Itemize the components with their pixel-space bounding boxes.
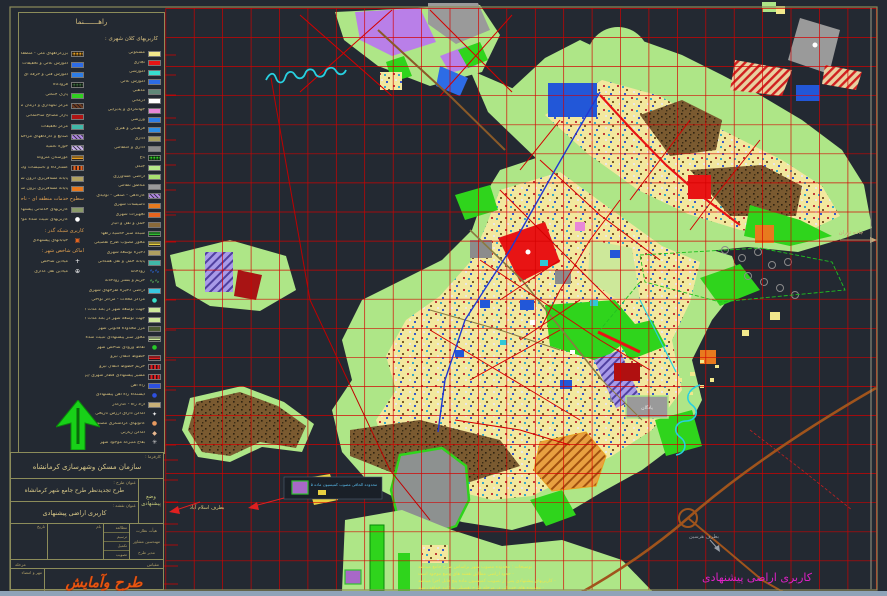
asterisk-symbol-icon: ✳ <box>148 440 161 446</box>
cad-drawing-canvas[interactable]: جاده تهران بطرف اسلام آباد بطرف هرسین پا… <box>0 0 887 596</box>
legend-item-label: جنگل <box>135 165 145 170</box>
legend-item: مرکز نگهداری و درمان معتادان <box>21 101 84 111</box>
window-bottom-edge <box>0 591 887 596</box>
road-label-tehran: جاده تهران <box>839 230 864 236</box>
legend-item-label: آزاد راه - کنارگذر <box>112 403 145 408</box>
legend-item-label: حریم خطوط انتقال نیرو <box>99 365 145 370</box>
legend-color-swatch <box>148 70 161 76</box>
legend-color-swatch <box>148 260 161 266</box>
blob-symbol-icon: ● <box>148 421 161 427</box>
legend-item: آموزش عالی و تحقیقات <box>21 59 84 69</box>
sheet-row: عنوان نقشه : کاربری اراضی پیشنهادی <box>11 502 138 524</box>
client-name: سازمان مسکن وشهرسازی کرمانشاه <box>11 453 163 481</box>
legend-item-label: بازار مصالح ساختمانی <box>26 114 68 119</box>
legend-item: اداری <box>84 135 161 145</box>
plan-sheet-rows: وضع پیشنهادی عنوان طرح : طرح تجدیدنظر طر… <box>11 479 163 524</box>
legend-section-header: اماکن شاخص شهر : <box>21 246 84 256</box>
legend-item-label: پایانه مسافربری برون شهری <box>21 187 68 192</box>
legend-color-swatch <box>148 184 161 190</box>
legend-color-swatch <box>148 326 161 332</box>
legend-item: مناطق نظامی <box>84 182 161 192</box>
legend-item-label: حوزه علمیه <box>46 145 68 150</box>
legend-color-swatch <box>148 165 161 171</box>
legend-color-swatch: ∿∿ <box>148 279 161 285</box>
legend-color-swatch <box>71 114 84 120</box>
plan-label: عنوان طرح : <box>113 480 136 485</box>
legend-item-label: اراضی ذخیره طرحهای شهری <box>89 289 145 294</box>
legend-item-label: تجاری <box>134 61 145 66</box>
legend-section-header: سطوح خدمات منطقه ای - ناحیه ای : <box>21 194 84 204</box>
legend-color-swatch <box>148 108 161 114</box>
legend-color-swatch <box>71 51 84 57</box>
plan-row: عنوان طرح : طرح تجدیدنظر طرح جامع شهر کر… <box>11 479 138 502</box>
legend-color-swatch <box>71 155 84 161</box>
legend-item: شبکه سبز حاشیه راهها <box>84 230 161 240</box>
road-label-islamabad: بطرف اسلام آباد <box>190 504 225 511</box>
title-block: کارفرما : سازمان مسکن وشهرسازی کرمانشاه … <box>10 452 164 590</box>
legend-item-label: بزرگراههای ملی - منطقه ای <box>21 52 68 57</box>
legend-item: نقاط ورودی شاخص شهر● <box>84 344 161 354</box>
sheet-title-text: کاربری اراضی پیشنهادی <box>702 571 813 584</box>
legend-color-swatch <box>148 155 161 161</box>
legend-item-label: مرکز تحقیقات <box>41 125 68 130</box>
legend-color-swatch <box>148 146 161 152</box>
legend-color-swatch <box>148 79 161 85</box>
legend-item-label: حمل و نقل و انبار <box>111 222 145 227</box>
legend-column-left: بزرگراههای ملی - منطقه ایآموزش عالی و تح… <box>21 49 84 278</box>
legend-item-label: کارگاهی - صنفی - تولیدی <box>96 194 145 199</box>
legend-item: مسکونی <box>84 49 161 59</box>
legend-panel: راهـــــــنما کاربریهای کلان شهری : بزرگ… <box>18 12 165 454</box>
legend-item-label: محور سبز پیشنهادی تثبیت شده <box>85 336 145 341</box>
legend-color-swatch <box>71 176 84 182</box>
legend-item: مسیر پیشنهادی قطار شهری (پروژه) <box>84 372 161 382</box>
legend-item: پارک جنگلی <box>21 91 84 101</box>
legend-item: حمل و نقل و انبار <box>84 220 161 230</box>
legend-color-swatch <box>71 145 84 151</box>
signature-table-right-labels: هیأت نظارت مهندسین مشاور مدیر طرح <box>129 524 163 559</box>
client-label: کارفرما : <box>145 454 161 459</box>
legend-item-label: اداری و انتظامی <box>114 146 145 151</box>
legend-item: باغ <box>84 154 161 164</box>
legend-item: درمانی <box>84 97 161 107</box>
legend-item: ورزشی <box>84 116 161 126</box>
signature-table: هیأت نظارت مهندسین مشاور مدیر طرح مطالعه… <box>11 524 163 560</box>
legend-color-swatch <box>148 355 161 361</box>
legend-item: خیابانهای پیشنهادی▣ <box>21 236 84 246</box>
legend-item-label: تجهیزات شهری <box>116 213 145 218</box>
legend-color-swatch <box>148 60 161 66</box>
legend-item-label: کانونهای گردشگری مصنوع <box>94 422 145 427</box>
legend-item-label: صنایع و کارگاههای مزاحم شهری <box>21 135 68 140</box>
legend-color-swatch <box>148 374 161 380</box>
legend-color-swatch <box>71 134 84 140</box>
legend-item: راه آهن <box>84 382 161 392</box>
legend-color-swatch <box>148 231 161 237</box>
dot-symbol-icon: ● <box>148 393 161 399</box>
legend-item: کاربریهای تثبیت شده موجود● <box>21 215 84 225</box>
garrison-label: پادگان <box>641 404 653 411</box>
dot-symbol-icon: ● <box>148 345 161 351</box>
signature-date-column: تاریخ <box>11 524 47 559</box>
legend-item-label: اراضی کشاورزی <box>113 175 145 180</box>
legend-item: تجاری <box>84 59 161 69</box>
sheet-label: عنوان نقشه : <box>112 503 136 508</box>
legend-item: رودخانه∿∿ <box>84 268 161 278</box>
legend-item-label: درمانی <box>132 99 145 104</box>
dot-symbol-icon: ● <box>148 298 161 304</box>
legend-color-swatch <box>148 117 161 123</box>
legend-item-label: پارک جنگلی <box>45 93 68 98</box>
legend-item-label: حریم و بستر رودخانه <box>105 279 145 284</box>
svg-text:- کاربریهای پیشنهادی پس از تصو: - کاربریهای پیشنهادی پس از تصویب کمیسیون… <box>418 578 556 584</box>
legend-item: مرکز تحقیقات <box>21 122 84 132</box>
legend-color-swatch <box>148 307 161 313</box>
diamond-symbol-icon: ◆ <box>148 431 161 437</box>
scale-label: مقیاس <box>147 560 159 568</box>
legend-item: اراضی ذخیره طرحهای شهری <box>84 287 161 297</box>
scale-stage-row: مقیاس مرحله <box>11 560 163 569</box>
legend-item-label: کشتارگاه و تاسیسات وابسته <box>21 166 68 171</box>
legend-color-swatch <box>148 222 161 228</box>
legend-item-label: میادین ثقل گذاری <box>34 270 68 275</box>
star-symbol-icon: ✦ <box>148 412 161 418</box>
legend-item: فرهنگی و هنری <box>84 125 161 135</box>
legend-item: مراکز محلات - مراکز نواحی● <box>84 296 161 306</box>
legend-item-label: محور مصوب طرح تفصیلی <box>94 241 145 246</box>
legend-color-swatch <box>71 103 84 109</box>
legend-item-label: مراکز محلات - مراکز نواحی <box>91 298 145 303</box>
legend-color-swatch <box>148 127 161 133</box>
legend-item-label: کاربریهای خدماتی پیشنهادی مقیاس شهری <box>21 208 68 213</box>
legend-item: کاربریهای خدماتی پیشنهادی مقیاس شهری <box>21 205 84 215</box>
legend-color-swatch <box>148 136 161 142</box>
legend-item: اداری و انتظامی <box>84 144 161 154</box>
legend-color-swatch <box>148 364 161 370</box>
legend-item: حریم خطوط انتقال نیرو <box>84 363 161 373</box>
legend-item-label: پایانه حمل و نقل همگانی <box>98 260 145 265</box>
legend-item-label: رودخانه <box>131 270 145 275</box>
legend-item: حریم و بستر رودخانه∿∿ <box>84 277 161 287</box>
legend-color-swatch <box>148 98 161 104</box>
legend-item-label: اداری <box>135 137 145 142</box>
legend-item-label: کاربریهای تثبیت شده موجود <box>21 218 68 223</box>
status-side-tab: وضع پیشنهادی <box>139 479 163 523</box>
legend-color-swatch <box>148 203 161 209</box>
legend-color-swatch <box>71 82 84 88</box>
legend-item: پایانه مسافربری درون شهری <box>21 174 84 184</box>
legend-item: میادین شاخص+ <box>21 257 84 267</box>
legend-item: پایانه حمل و نقل همگانی <box>84 258 161 268</box>
legend-item: گورستان متروکه <box>21 153 84 163</box>
legend-item-label: خیابانهای پیشنهادی <box>33 239 68 244</box>
legend-item: خطوط انتقال نیرو <box>84 353 161 363</box>
legend-color-swatch <box>148 383 161 389</box>
legend-item-label: ورزشی <box>131 118 145 123</box>
legend-item: کارگاهی - صنفی - تولیدی <box>84 192 161 202</box>
legend-item-label: مسیر پیشنهادی قطار شهری (پروژه) <box>85 374 145 379</box>
legend-item-label: مرز محدوده قانونی شهر <box>98 327 145 332</box>
legend-item: میادین ثقل گذاری⊕ <box>21 267 84 277</box>
signature-stage-column: مطالعه ترسیم تکمیل تصویب <box>103 524 129 559</box>
legend-subtitle: کاربریهای کلان شهری : <box>19 36 158 42</box>
legend-item: جهانگردی و پذیرایی <box>84 106 161 116</box>
legend-item-label: ذخیره توسعه شهری <box>107 251 145 256</box>
svg-text:- حدود اراضی مطابق نقشه های وض: - حدود اراضی مطابق نقشه های وضع موجود اس… <box>418 572 514 577</box>
legend-item: تاسیسات شهری <box>84 201 161 211</box>
legend-item-label: مذهبی <box>132 89 145 94</box>
legend-color-swatch <box>148 212 161 218</box>
legend-item: مذهبی <box>84 87 161 97</box>
legend-item-label: اماکن زیارتی <box>120 431 145 436</box>
legend-item: اراضی کشاورزی <box>84 173 161 183</box>
legend-title: راهـــــــنما <box>19 18 164 26</box>
boxdot-symbol-icon: ▣ <box>71 238 84 244</box>
legend-item-label: شبکه سبز حاشیه راهها <box>101 232 145 237</box>
legend-item: جنگل <box>84 163 161 173</box>
consultant-logo: طرح وآمایش <box>45 575 163 591</box>
legend-item: جهت توسعه شهر در بلند مدت (احتمالی) <box>84 315 161 325</box>
legend-color-swatch <box>71 124 84 130</box>
legend-columns: بزرگراههای ملی - منطقه ایآموزش عالی و تح… <box>21 49 161 451</box>
legend-item-label: جهت توسعه شهر در بلند مدت (احتمالی - اصل… <box>85 308 145 313</box>
legend-color-swatch <box>148 89 161 95</box>
dot-symbol-icon: ● <box>71 217 84 223</box>
legend-item: آموزش عالی <box>84 78 161 88</box>
target-symbol-icon: ⊕ <box>71 269 84 275</box>
legend-color-swatch <box>148 317 161 323</box>
road-label-harsin: بطرف هرسین <box>689 534 719 540</box>
legend-item: آموزشی <box>84 68 161 78</box>
legend-color-swatch <box>148 241 161 247</box>
north-arrow-icon <box>56 400 100 450</box>
legend-color-swatch <box>148 193 161 199</box>
legend-item-label: مسکونی <box>128 51 145 56</box>
legend-color-swatch <box>71 72 84 78</box>
legend-color-swatch <box>148 250 161 256</box>
legend-item-label: فرودگاه <box>53 83 68 88</box>
legend-item-label: مرکز نگهداری و درمان معتادان <box>21 104 68 109</box>
legend-item: تجهیزات شهری <box>84 211 161 221</box>
legend-color-swatch <box>71 93 84 99</box>
legend-color-swatch <box>71 186 84 192</box>
legend-item: مرز محدوده قانونی شهر <box>84 325 161 335</box>
legend-item: بزرگراههای ملی - منطقه ای <box>21 49 84 59</box>
legend-item-label: آموزشی <box>129 70 145 75</box>
legend-item: بازار مصالح ساختمانی <box>21 111 84 121</box>
legend-color-swatch <box>71 62 84 68</box>
legend-item-label: بقاع متبرکه موجود شهر <box>100 441 145 446</box>
signature-name-column: نام <box>47 524 103 559</box>
legend-item-label: راه آهن <box>130 384 145 389</box>
plus-symbol-icon: + <box>71 259 84 265</box>
legend-item-label: جهانگردی و پذیرایی <box>108 108 145 113</box>
legend-item-label: آموزش عالی <box>120 80 145 85</box>
legend-item: محور سبز پیشنهادی تثبیت شده <box>84 334 161 344</box>
legend-item: کشتارگاه و تاسیسات وابسته <box>21 163 84 173</box>
legend-item: فرودگاه <box>21 80 84 90</box>
legend-item-label: گورستان متروکه <box>37 156 69 161</box>
legend-item-label: نقاط ورودی شاخص شهر <box>97 346 145 351</box>
legend-item-label: پایانه مسافربری درون شهری <box>21 177 68 182</box>
legend-item: محور مصوب طرح تفصیلی <box>84 239 161 249</box>
legend-item-label: باغ <box>140 156 145 161</box>
legend-color-swatch <box>148 174 161 180</box>
legend-color-swatch <box>148 51 161 57</box>
legend-column-right: مسکونیتجاریآموزشیآموزش عالیمذهبیدرمانیجه… <box>84 49 161 448</box>
legend-item-label: ایستگاه راه آهن پیشنهادی <box>96 393 145 398</box>
legend-item-label: آموزش فنی و حرفه ای <box>24 73 68 78</box>
stage-label: مرحله <box>15 560 26 568</box>
legend-item: حوزه علمیه <box>21 143 84 153</box>
legend-item-label: اماکن دارای ارزش تاریخی <box>95 412 145 417</box>
legend-section-header: کاربری شبکه گذر : <box>21 226 84 236</box>
legend-color-swatch <box>148 288 161 294</box>
legend-color-swatch <box>148 402 161 408</box>
legend-item-label: تاسیسات شهری <box>114 203 145 208</box>
legend-item: صنایع و کارگاههای مزاحم شهری <box>21 132 84 142</box>
legend-item: جهت توسعه شهر در بلند مدت (احتمالی - اصل… <box>84 306 161 316</box>
client-row: کارفرما : سازمان مسکن وشهرسازی کرمانشاه <box>11 453 163 479</box>
legend-item: آموزش فنی و حرفه ای <box>21 70 84 80</box>
svg-text:توضیحات : محدوده مصوب شهر براس: توضیحات : محدوده مصوب شهر براساس طرح جام… <box>418 565 533 570</box>
legend-item: ذخیره توسعه شهری <box>84 249 161 259</box>
legend-color-swatch <box>71 165 84 171</box>
legend-item-label: خطوط انتقال نیرو <box>110 355 145 360</box>
legend-color-swatch <box>71 207 84 213</box>
legend-item-label: آموزش عالی و تحقیقات <box>22 62 68 67</box>
legend-color-swatch <box>148 336 161 342</box>
legend-item-label: فرهنگی و هنری <box>115 127 145 132</box>
legend-item-label: میادین شاخص <box>41 260 68 265</box>
legend-item-label: جهت توسعه شهر در بلند مدت (احتمالی) <box>85 317 145 322</box>
legend-item: پایانه مسافربری برون شهری <box>21 184 84 194</box>
legend-color-swatch: ∿∿ <box>148 269 161 275</box>
callout-label: محدوده الحاقی مصوب کمیسیون ماده ۵ <box>311 482 377 487</box>
legend-item-label: مناطق نظامی <box>118 184 145 189</box>
